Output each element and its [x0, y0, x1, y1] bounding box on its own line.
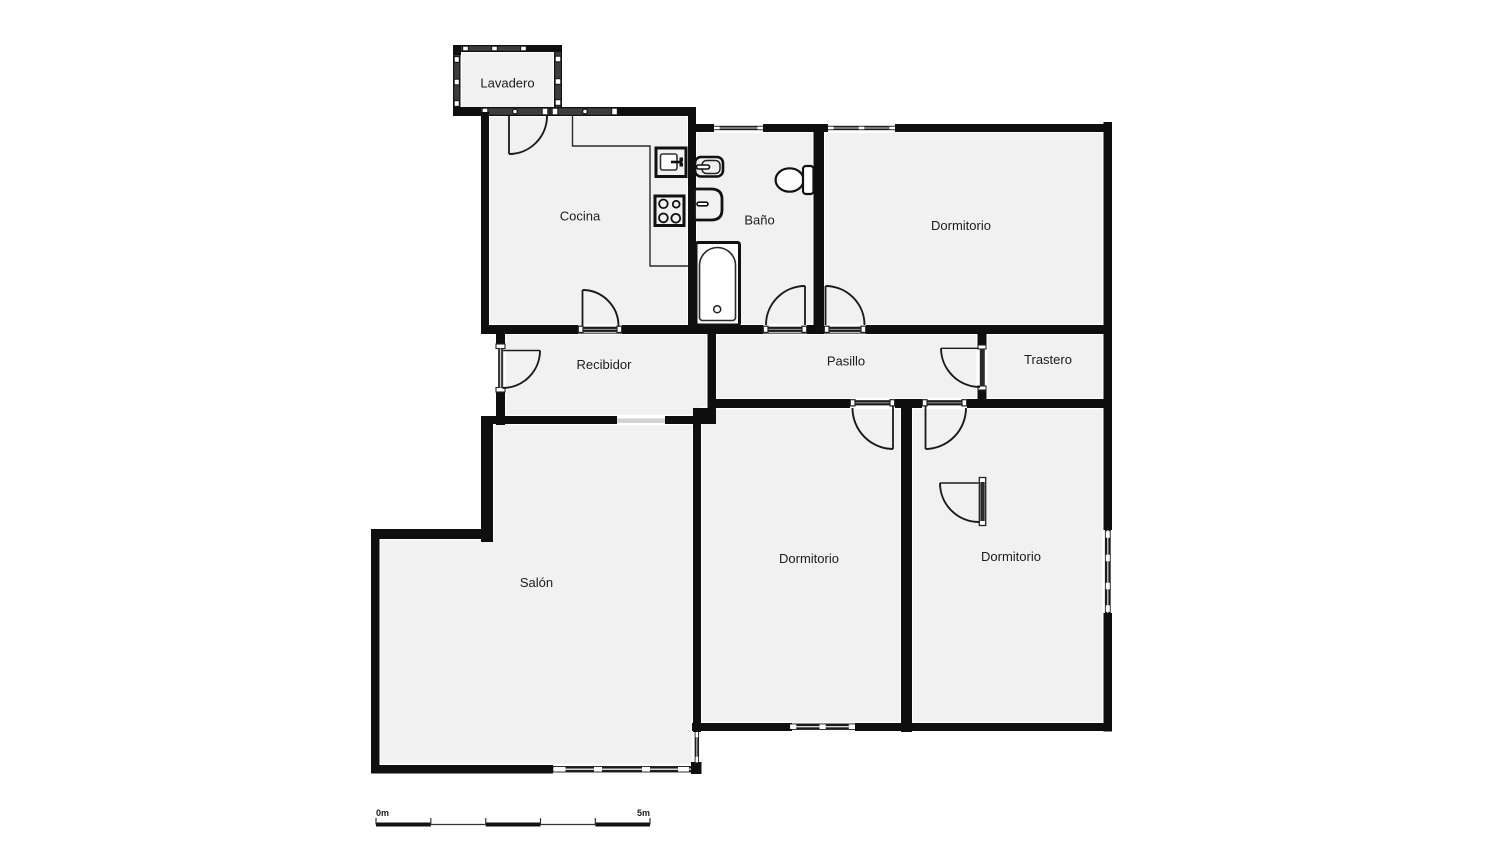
svg-text:Trastero: Trastero [1024, 352, 1072, 367]
svg-text:0m: 0m [376, 808, 389, 818]
svg-text:Cocina: Cocina [560, 209, 601, 224]
svg-text:Recibidor: Recibidor [577, 357, 633, 372]
svg-text:Dormitorio: Dormitorio [779, 551, 839, 566]
svg-text:5m: 5m [637, 808, 650, 818]
svg-text:Dormitorio: Dormitorio [981, 549, 1041, 564]
svg-text:Salón: Salón [520, 575, 553, 590]
svg-text:Baño: Baño [744, 213, 774, 228]
svg-text:Pasillo: Pasillo [827, 354, 865, 369]
svg-text:Lavadero: Lavadero [480, 76, 534, 91]
svg-text:Dormitorio: Dormitorio [931, 218, 991, 233]
